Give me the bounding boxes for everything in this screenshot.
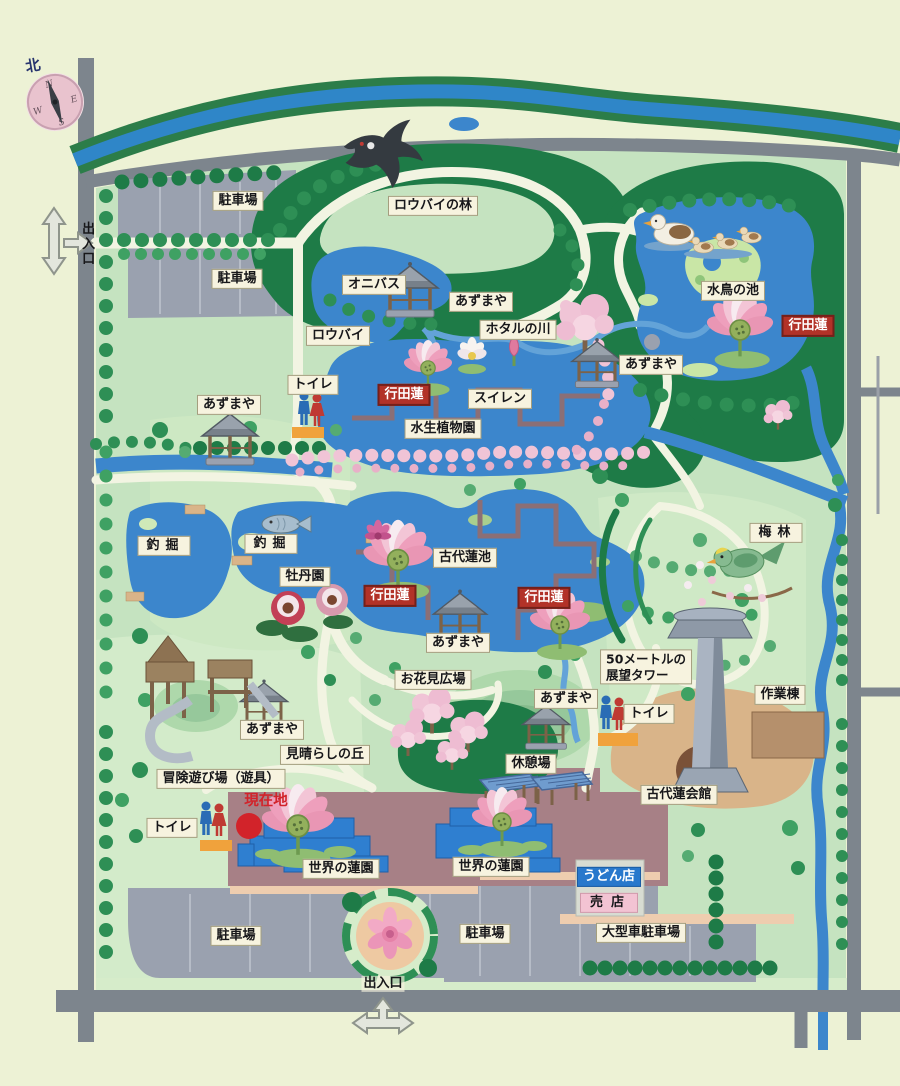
small-pond [449,117,479,131]
label-lotus-hall: 古代蓮会館 [640,785,717,805]
label-current-location: 現在地 [239,791,293,811]
label-azumaya-2: あずまや [619,355,683,375]
label-parking-sw: 駐車場 [210,926,261,946]
label-aquatic-garden: 水生植物園 [404,419,481,439]
label-observation-tower-line1: 50メートルの [606,651,686,667]
label-robai: ロウバイ [306,326,370,346]
label-gyodahasu-3: 行田蓮 [363,585,416,607]
label-toilet-2: トイレ [623,704,674,724]
label-parking-large: 大型車駐車場 [596,923,686,943]
peony-red [271,591,305,625]
label-ancient-lotus-pond: 古代蓮池 [433,548,497,568]
label-robai-grove: ロウバイの林 [388,196,478,216]
label-azumaya-3: あずまや [197,395,261,415]
label-ohanami-plaza: お花見広場 [394,670,471,690]
label-udon-shop: うどん店 [577,867,641,887]
work-building [752,712,824,758]
label-rest-area: 休憩場 [505,754,556,774]
toilet-mat [200,840,232,851]
label-exit-west: 出入口 [78,222,94,267]
roundabout [342,888,438,984]
label-azumaya-5: あずまや [534,689,598,709]
label-azumaya-4: あずまや [426,633,490,653]
label-tsuribori-1: 釣掘 [137,536,190,556]
label-adventure-playground: 冒険遊び場（遊具） [156,769,285,789]
label-observation-tower: 50メートルの展望タワー [600,649,692,684]
label-shop: 売店 [580,893,638,913]
park-map: N E S W 駐車場 駐車場 ロウバイの林 オニバス あずまや ホタルの川 ロ… [0,0,900,1086]
label-suiren: スイレン [468,389,532,409]
label-exit-south: 出入口 [361,976,404,992]
label-hotaru-river: ホタルの川 [479,320,556,340]
label-tsuribori-2: 釣掘 [244,534,297,554]
compass-north-mark: 北 [19,54,47,79]
label-onibasu: オニバス [342,275,406,295]
label-azumaya-1: あずまや [449,292,513,312]
label-parking-s: 駐車場 [459,924,510,944]
label-world-lotus-1: 世界の蓮園 [302,859,379,879]
toilet-mat [292,427,324,438]
label-observation-tower-line2: 展望タワー [606,667,686,683]
label-bairin: 梅林 [749,523,802,543]
peony-pink [316,584,348,616]
label-miharashi-hill: 見晴らしの丘 [280,745,370,765]
label-world-lotus-2: 世界の蓮園 [452,857,529,877]
label-toilet-3: トイレ [146,818,197,838]
current-location-dot [236,813,262,839]
toilet-mat [598,733,638,746]
label-toilet-1: トイレ [287,375,338,395]
label-parking-nw2: 駐車場 [211,269,262,289]
label-azumaya-6: あずまや [240,720,304,740]
label-gyodahasu-1: 行田蓮 [781,315,834,337]
label-waterbird-pond: 水鳥の池 [701,281,765,301]
label-parking-nw1: 駐車場 [212,191,263,211]
label-botan-garden: 牡丹園 [279,567,330,587]
label-gyodahasu-2: 行田蓮 [377,384,430,406]
label-gyodahasu-4: 行田蓮 [517,587,570,609]
label-work-building: 作業棟 [754,685,805,705]
